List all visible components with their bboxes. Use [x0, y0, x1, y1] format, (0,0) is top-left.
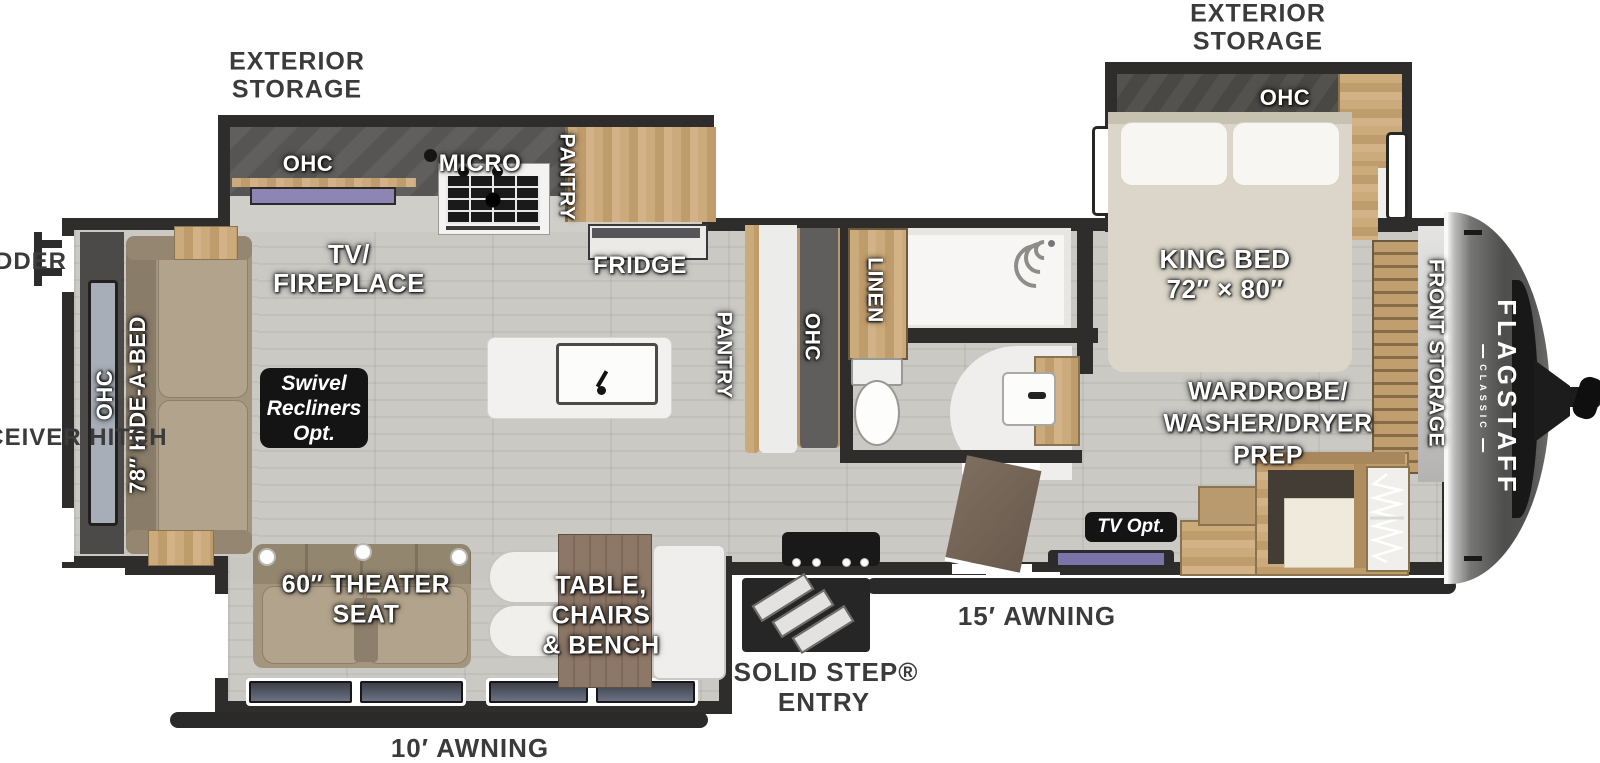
- bottom-slide-window-left: [215, 594, 228, 678]
- label-tv-fireplace: TV/: [328, 241, 370, 267]
- label-dinette: TABLE,: [555, 574, 646, 599]
- label-awning-rear: 10′ AWNING: [391, 735, 549, 761]
- brand-logo: FLAGSTAFF CLASSIC: [1478, 299, 1522, 497]
- kitchen-faucet-icon: [424, 149, 437, 162]
- label-exterior-storage-right: EXTERIOR: [1190, 2, 1326, 27]
- cap-marker: [1464, 230, 1482, 235]
- label-wardrobe: WARDROBE/: [1188, 380, 1348, 405]
- nightstand: [1352, 166, 1378, 240]
- label-tv-fireplace: FIREPLACE: [273, 270, 425, 296]
- label-theater-seat: SEAT: [333, 603, 400, 628]
- cupholder-icon: [258, 548, 276, 566]
- stove-grate: [446, 176, 540, 224]
- cupholder-icon: [354, 543, 372, 561]
- label-ohc-kitchen: OHC: [283, 153, 333, 175]
- island-faucet-icon: [597, 386, 606, 395]
- kitchen-counter-ledge: [232, 178, 416, 187]
- label-wardrobe: WASHER/DRYER: [1163, 412, 1372, 437]
- label-linen: LINEN: [865, 257, 886, 323]
- badge-line: Recliners: [267, 396, 362, 421]
- brand-series: CLASSIC: [1478, 299, 1488, 497]
- label-awning-front: 15′ AWNING: [958, 603, 1116, 629]
- tv-optional-screen: [1058, 553, 1164, 565]
- dinette-bench: [652, 544, 726, 680]
- label-wardrobe: PREP: [1233, 444, 1303, 469]
- bath-wall-bottom: [840, 450, 1082, 463]
- label-exterior-storage-right: STORAGE: [1193, 30, 1323, 55]
- hitch-handle-icon: [1570, 374, 1600, 421]
- label-ohc-island: OHC: [802, 313, 823, 361]
- bath-wall-right: [1077, 222, 1093, 374]
- label-theater-seat: 60″ THEATER: [282, 573, 450, 598]
- slide-window-strip: [246, 678, 466, 706]
- badge-line: TV Opt.: [1097, 516, 1165, 538]
- label-receiver-hitch: 2″ RECEIVER HITCH: [0, 426, 168, 450]
- window-pane: [249, 681, 352, 703]
- fridge-top: [592, 228, 700, 238]
- griddle-foot-icon: [842, 558, 851, 567]
- label-pantry-wall: PANTRY: [557, 134, 578, 221]
- clothes-hangers-icon: [1368, 470, 1406, 566]
- label-solid-step: SOLID STEP®: [734, 659, 919, 685]
- pantry-cabinet: [565, 127, 716, 222]
- floorplan: FLAGSTAFF CLASSIC: [0, 0, 1600, 763]
- kitchen-sink-cover: [250, 187, 396, 205]
- tv-opt-badge: TV Opt.: [1085, 512, 1177, 542]
- peninsula-counter: [759, 225, 797, 453]
- bedroom-window-right: [1386, 132, 1408, 220]
- badge-line: Opt.: [293, 421, 335, 446]
- end-table: [148, 530, 214, 566]
- ladder-icon: [38, 240, 65, 248]
- sofa-cushion: [158, 250, 248, 398]
- label-dinette: CHAIRS: [552, 604, 651, 629]
- peninsula-wood-edge: [745, 225, 759, 453]
- wardrobe-step: [1180, 520, 1262, 576]
- label-king-bed: KING BED: [1159, 246, 1290, 272]
- sofa-cushion: [158, 400, 248, 548]
- window-pane: [360, 681, 463, 703]
- label-fridge: FRIDGE: [593, 254, 687, 278]
- washer-prep-box: [1284, 498, 1358, 568]
- bath-wall-shower-bottom: [896, 328, 1098, 343]
- label-pantry-island: PANTRY: [714, 312, 735, 399]
- label-micro: MICRO: [439, 152, 522, 176]
- awning-rear-rail: [170, 712, 708, 728]
- wardrobe-step: [1198, 486, 1262, 526]
- label-dinette: & BENCH: [542, 634, 659, 659]
- front-storage-shelves: [1372, 240, 1422, 474]
- bed-pillow: [1232, 122, 1340, 186]
- label-hide-a-bed: 78″ HIDE-A-BED: [127, 316, 149, 494]
- griddle-foot-icon: [860, 558, 869, 567]
- stove-handle: [446, 226, 540, 230]
- label-ohc-bedroom: OHC: [1260, 87, 1310, 109]
- label-exterior-storage-left: EXTERIOR: [229, 50, 365, 75]
- griddle-foot-icon: [812, 558, 821, 567]
- label-solid-step: ENTRY: [778, 689, 870, 715]
- griddle-foot-icon: [792, 558, 801, 567]
- label-front-storage: FRONT STORAGE: [1426, 259, 1447, 447]
- label-ohc-rear: OHC: [94, 370, 116, 420]
- cupholder-icon: [450, 548, 468, 566]
- wardrobe-divider: [1354, 464, 1366, 568]
- rear-slide-window-bottom: [62, 508, 74, 562]
- shower-head-icon: [1048, 240, 1055, 247]
- label-ladder: LADDER: [0, 250, 67, 274]
- swivel-recliners-badge: Swivel Recliners Opt.: [260, 368, 368, 448]
- bath-sink: [1002, 372, 1056, 426]
- bath-faucet-icon: [1028, 392, 1046, 399]
- toilet-bowl: [854, 380, 900, 446]
- bed-pillow: [1120, 122, 1228, 186]
- label-exterior-storage-left: STORAGE: [232, 78, 362, 103]
- rear-cabinet: [174, 226, 238, 260]
- badge-line: Swivel: [281, 371, 346, 396]
- label-king-bed: 72″ × 80″: [1167, 276, 1284, 302]
- awning-front-rail: [866, 578, 1456, 594]
- brand-name: FLAGSTAFF: [1491, 299, 1522, 497]
- cap-marker: [1464, 556, 1482, 561]
